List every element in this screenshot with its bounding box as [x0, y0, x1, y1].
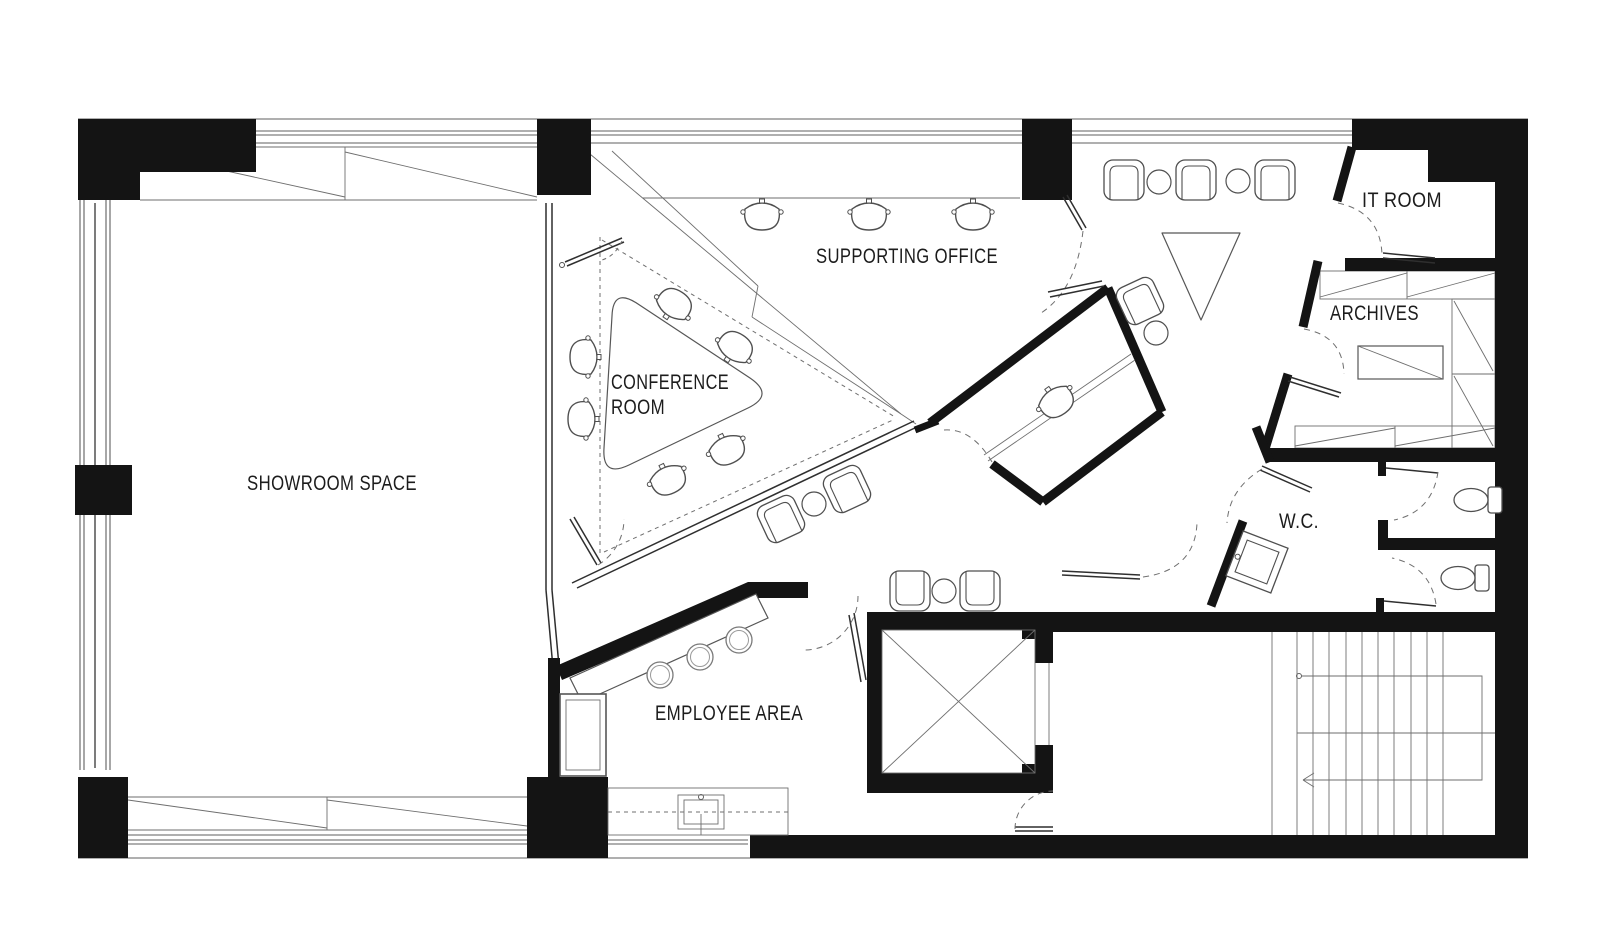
toilet	[1454, 487, 1502, 513]
planter-triangle	[1162, 233, 1240, 320]
lounge-chair	[1176, 160, 1216, 200]
floor-plan-drawing: SHOWROOM SPACE CONFERENCE ROOM SUPPORTIN…	[0, 0, 1600, 944]
room-labels: SHOWROOM SPACE CONFERENCE ROOM SUPPORTIN…	[247, 189, 1442, 725]
lounge-chair	[1104, 160, 1144, 200]
toilet	[1441, 565, 1489, 591]
bar-stool	[687, 644, 713, 670]
elevator-shaft	[882, 630, 1049, 773]
label-conference-2: ROOM	[611, 396, 665, 419]
round-table	[1144, 321, 1168, 345]
office-chair	[642, 456, 694, 502]
label-employee-area: EMPLOYEE AREA	[655, 702, 803, 725]
lounge-chair	[960, 571, 1000, 611]
office-chair	[848, 199, 890, 230]
label-supporting-office: SUPPORTING OFFICE	[816, 245, 998, 268]
round-table	[1147, 170, 1171, 194]
closet	[560, 694, 606, 776]
lounge-chair	[1255, 160, 1295, 200]
office-chair	[741, 199, 783, 230]
round-table	[802, 492, 826, 516]
round-table	[1226, 169, 1250, 193]
office-chair	[952, 199, 994, 230]
stair-walk-line	[1297, 674, 1483, 788]
label-wc: W.C.	[1279, 510, 1319, 533]
office-chair	[570, 336, 601, 378]
lounge-chair	[890, 571, 930, 611]
lounge-chair	[820, 462, 873, 515]
staircase	[1272, 632, 1495, 835]
office-chair	[568, 398, 599, 440]
label-conference-1: CONFERENCE	[611, 371, 729, 394]
bar-stool	[647, 662, 673, 688]
kitchen-counter	[608, 788, 788, 835]
label-showroom: SHOWROOM SPACE	[247, 472, 417, 495]
bar-stool	[726, 627, 752, 653]
archives-table	[1358, 346, 1443, 379]
round-table	[932, 579, 956, 603]
label-it-room: IT ROOM	[1362, 189, 1442, 212]
office-chair	[701, 426, 753, 472]
floor-plan-canvas: SHOWROOM SPACE CONFERENCE ROOM SUPPORTIN…	[0, 0, 1600, 944]
label-archives: ARCHIVES	[1330, 302, 1419, 325]
